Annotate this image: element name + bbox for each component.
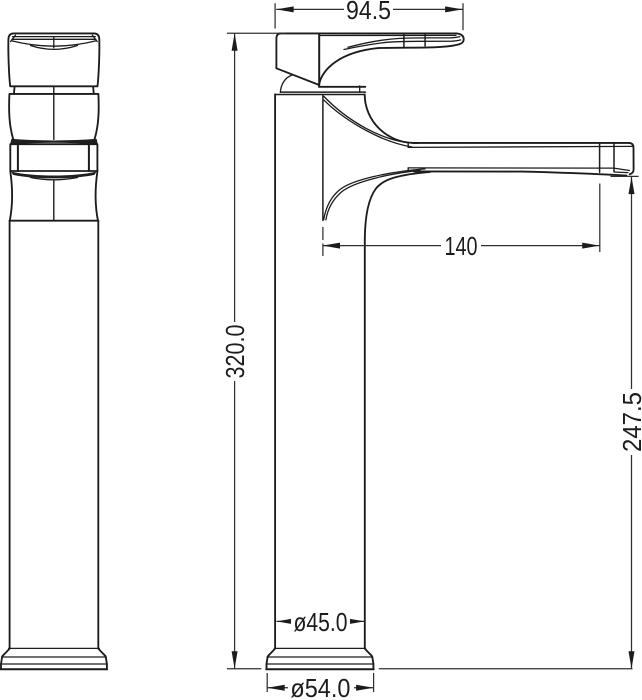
svg-text:247.5: 247.5	[617, 392, 642, 452]
svg-text:140: 140	[445, 231, 478, 261]
svg-text:ø54.0: ø54.0	[290, 673, 350, 700]
svg-text:ø45.0: ø45.0	[294, 607, 348, 637]
svg-text:320.0: 320.0	[220, 325, 250, 379]
svg-text:94.5: 94.5	[346, 0, 391, 25]
